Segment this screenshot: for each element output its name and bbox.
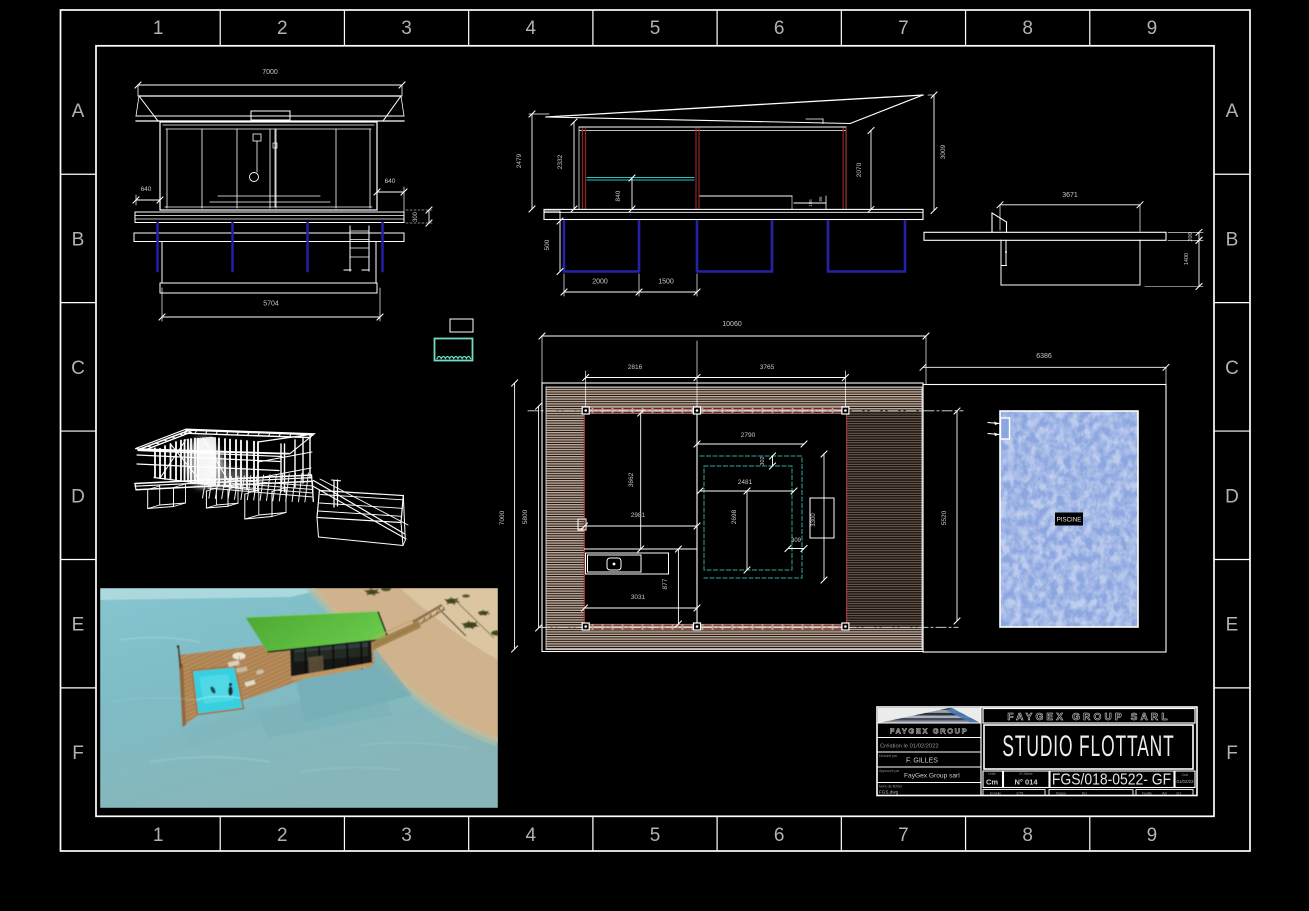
svg-text:3: 3 bbox=[401, 18, 412, 39]
svg-text:5: 5 bbox=[650, 825, 661, 846]
svg-text:Nom de fichier: Nom de fichier bbox=[879, 785, 903, 789]
svg-text:A: A bbox=[72, 101, 85, 122]
svg-text:Feuille: Feuille bbox=[1142, 791, 1152, 795]
svg-text:Approuvé par: Approuvé par bbox=[879, 769, 900, 773]
svg-text:Dessiné par: Dessiné par bbox=[879, 754, 898, 758]
svg-text:D: D bbox=[1225, 486, 1239, 507]
svg-text:FayGex Group sarl: FayGex Group sarl bbox=[904, 773, 960, 780]
svg-text:Echelle: Echelle bbox=[990, 791, 1001, 795]
svg-text:5800: 5800 bbox=[522, 509, 529, 524]
svg-text:FGS/018-0522- GF: FGS/018-0522- GF bbox=[1052, 772, 1171, 789]
svg-text:640: 640 bbox=[385, 178, 396, 185]
svg-text:7000: 7000 bbox=[262, 69, 278, 76]
svg-text:PISCINE: PISCINE bbox=[1057, 517, 1082, 524]
svg-text:3: 3 bbox=[401, 825, 412, 846]
svg-text:1500: 1500 bbox=[658, 279, 674, 286]
svg-text:1: 1 bbox=[153, 825, 164, 846]
svg-text:186: 186 bbox=[808, 199, 813, 207]
svg-text:F: F bbox=[72, 743, 84, 764]
svg-text:300: 300 bbox=[413, 211, 419, 222]
svg-text:309: 309 bbox=[791, 538, 802, 544]
svg-text:6: 6 bbox=[774, 18, 785, 39]
svg-text:A3: A3 bbox=[1162, 791, 1167, 795]
svg-text:D: D bbox=[71, 486, 85, 507]
svg-text:2481: 2481 bbox=[738, 479, 753, 486]
svg-text:8: 8 bbox=[1022, 18, 1033, 39]
svg-text:2: 2 bbox=[277, 18, 288, 39]
svg-text:F. GILLES: F. GILLES bbox=[906, 758, 938, 765]
svg-text:2698: 2698 bbox=[731, 509, 738, 524]
svg-text:N° 014: N° 014 bbox=[1014, 778, 1038, 787]
svg-text:E: E bbox=[1226, 615, 1239, 636]
svg-text:1400: 1400 bbox=[1184, 253, 1190, 265]
svg-text:10060: 10060 bbox=[722, 321, 742, 328]
svg-text:9: 9 bbox=[1147, 825, 1158, 846]
svg-text:4: 4 bbox=[525, 18, 536, 39]
svg-text:Création le 01/02/2022: Création le 01/02/2022 bbox=[880, 744, 939, 750]
svg-text:Cm: Cm bbox=[986, 778, 998, 787]
svg-text:3009: 3009 bbox=[940, 144, 947, 159]
svg-text:640: 640 bbox=[141, 186, 152, 193]
svg-text:C: C bbox=[1225, 358, 1239, 379]
svg-text:1/1: 1/1 bbox=[1176, 791, 1181, 795]
svg-text:A: A bbox=[1226, 101, 1239, 122]
svg-text:6: 6 bbox=[774, 825, 785, 846]
svg-text:FAYGEX GROUP SARL: FAYGEX GROUP SARL bbox=[1007, 712, 1170, 723]
svg-text:C: C bbox=[71, 358, 85, 379]
svg-text:2479: 2479 bbox=[516, 153, 523, 168]
svg-text:7000: 7000 bbox=[499, 510, 506, 525]
svg-text:STUDIO FLOTTANT: STUDIO FLOTTANT bbox=[1002, 730, 1174, 763]
svg-text:FAYGEX GROUP: FAYGEX GROUP bbox=[890, 727, 969, 736]
svg-text:F: F bbox=[1226, 743, 1238, 764]
svg-text:Unité: Unité bbox=[988, 772, 996, 776]
svg-text:01/02/22: 01/02/22 bbox=[1176, 779, 1194, 784]
svg-text:2332: 2332 bbox=[557, 154, 564, 169]
svg-text:2981: 2981 bbox=[631, 512, 646, 519]
svg-text:3671: 3671 bbox=[1062, 192, 1078, 199]
svg-text:5: 5 bbox=[650, 18, 661, 39]
svg-text:840: 840 bbox=[615, 190, 622, 201]
svg-text:Kg: Kg bbox=[1082, 791, 1087, 795]
svg-text:2816: 2816 bbox=[628, 364, 643, 371]
svg-text:4: 4 bbox=[525, 825, 536, 846]
svg-text:5704: 5704 bbox=[263, 301, 279, 308]
svg-text:3765: 3765 bbox=[760, 364, 775, 371]
svg-text:Masse: Masse bbox=[1056, 791, 1066, 795]
svg-text:500: 500 bbox=[544, 239, 551, 250]
svg-text:2790: 2790 bbox=[741, 432, 756, 439]
svg-text:86: 86 bbox=[818, 196, 823, 202]
svg-text:3300: 3300 bbox=[811, 513, 817, 527]
svg-text:B: B bbox=[72, 229, 85, 250]
svg-text:2: 2 bbox=[277, 825, 288, 846]
svg-text:7: 7 bbox=[898, 825, 909, 846]
svg-text:5520: 5520 bbox=[941, 510, 948, 525]
svg-text:B: B bbox=[1226, 229, 1239, 250]
svg-text:E: E bbox=[72, 615, 85, 636]
svg-text:9: 9 bbox=[1147, 18, 1158, 39]
svg-text:302: 302 bbox=[760, 456, 766, 465]
svg-text:7: 7 bbox=[898, 18, 909, 39]
svg-text:2070: 2070 bbox=[856, 162, 863, 177]
svg-text:877: 877 bbox=[662, 578, 669, 589]
svg-text:8: 8 bbox=[1022, 825, 1033, 846]
svg-text:6386: 6386 bbox=[1036, 353, 1052, 360]
svg-text:3031: 3031 bbox=[631, 594, 646, 601]
svg-text:1: 1 bbox=[153, 18, 164, 39]
svg-text:1/75: 1/75 bbox=[1016, 791, 1023, 795]
svg-text:N° Affaire: N° Affaire bbox=[1019, 772, 1033, 776]
svg-text:Date: Date bbox=[1182, 773, 1189, 777]
svg-text:FGS.dwg: FGS.dwg bbox=[879, 790, 899, 795]
svg-text:2000: 2000 bbox=[592, 279, 608, 286]
svg-text:3662: 3662 bbox=[628, 472, 635, 487]
